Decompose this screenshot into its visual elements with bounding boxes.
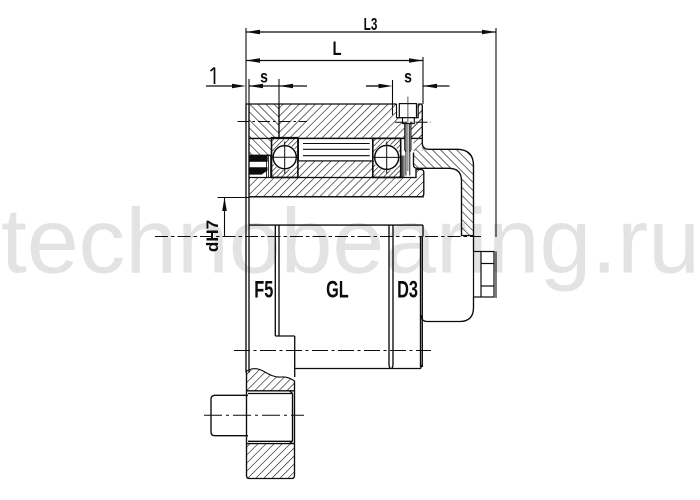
svg-text:D3: D3 [397,276,418,303]
svg-text:L: L [332,38,341,59]
svg-text:L3: L3 [364,15,378,35]
svg-text:F5: F5 [254,276,273,303]
svg-text:dH7: dH7 [203,220,222,252]
svg-text:GL: GL [326,276,349,303]
svg-text:s: s [404,67,412,87]
svg-text:s: s [260,67,268,87]
svg-text:technobearing.ru: technobearing.ru [1,191,700,293]
